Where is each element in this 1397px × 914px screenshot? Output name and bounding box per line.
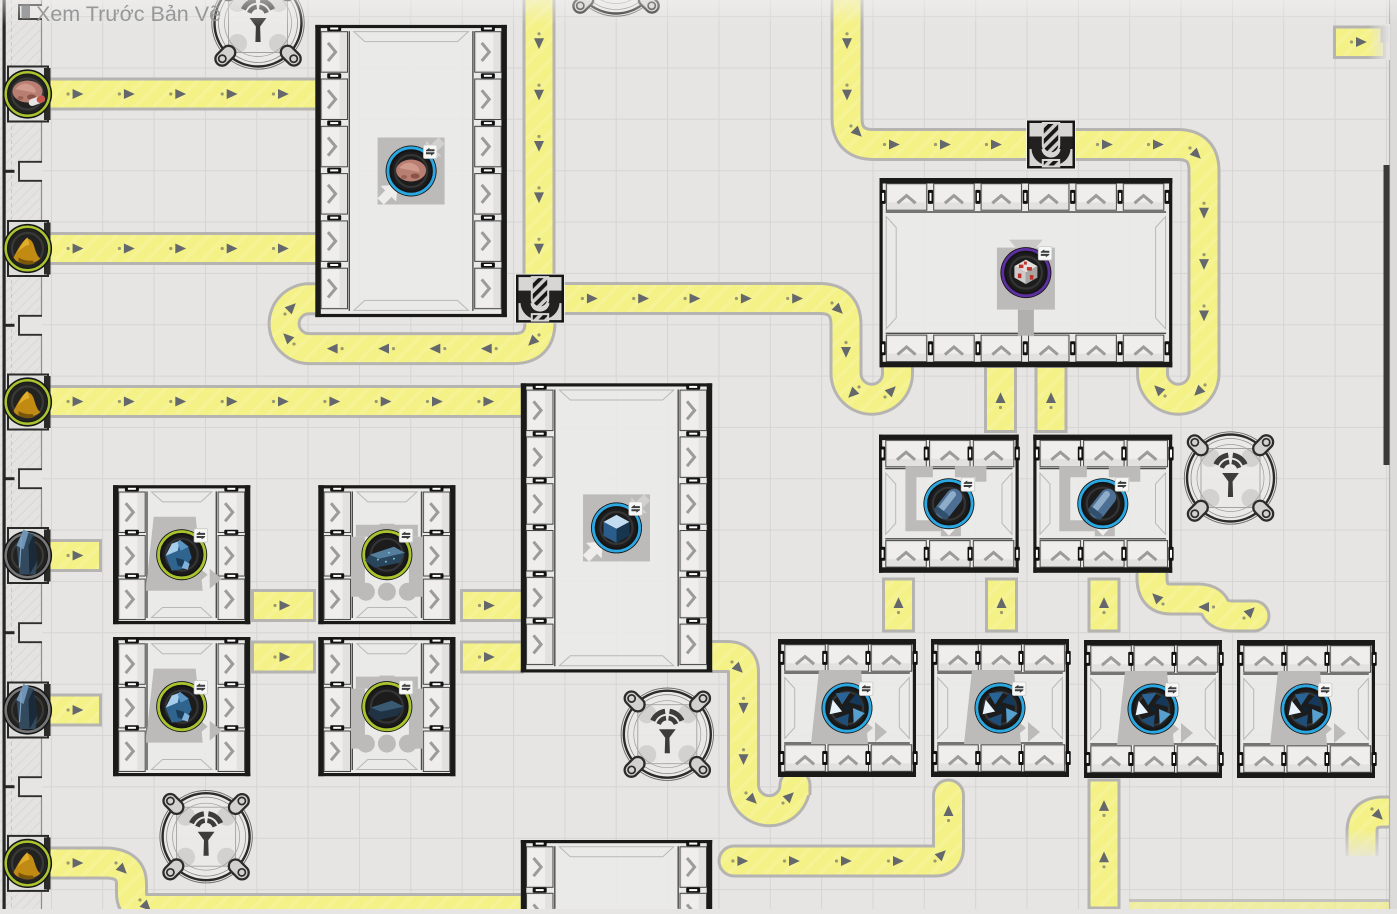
svg-text:Xem Trước Bản Vẽ: Xem Trước Bản Vẽ: [36, 2, 221, 26]
